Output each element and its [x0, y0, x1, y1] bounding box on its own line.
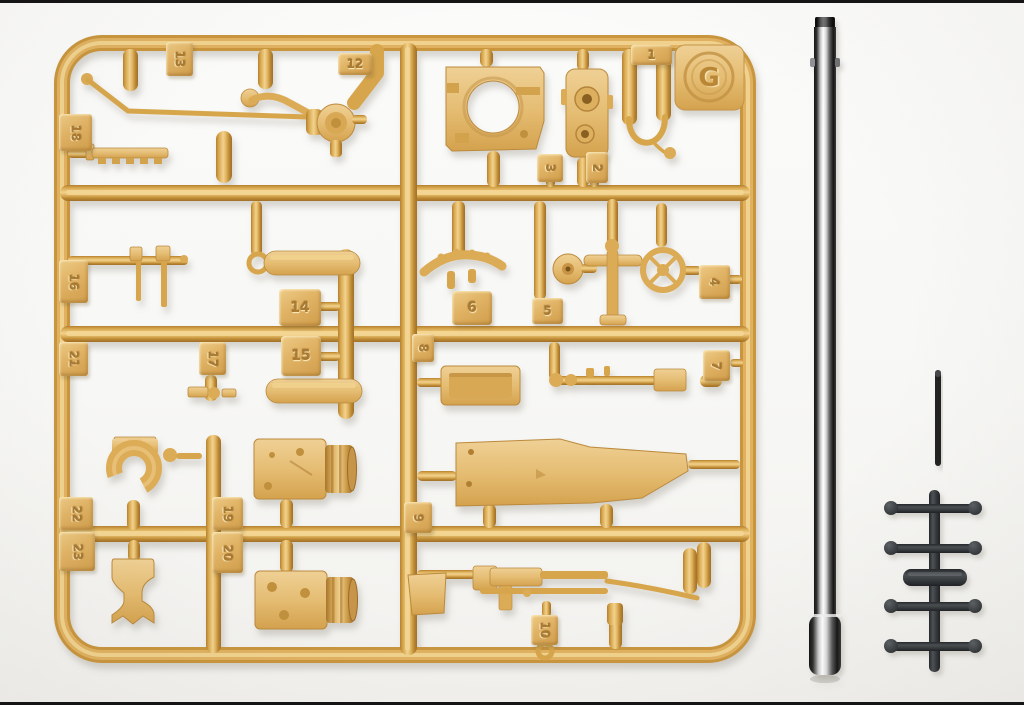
handwheel-part [643, 250, 683, 290]
part-tag-8: 8 [412, 334, 434, 362]
mg-mount-box-lower [255, 571, 358, 629]
part-tag-5: 5 [532, 298, 563, 324]
black-sprue [884, 490, 982, 672]
part-tag-10: 10 [531, 615, 558, 645]
u-clamp-part [112, 437, 158, 488]
part-tag-19: 19 [212, 497, 243, 530]
part-tag-13: 13 [166, 42, 193, 76]
cross-lever-part [584, 239, 642, 325]
pin-assembly-part [130, 246, 188, 307]
part-tag-23: 23 [59, 532, 95, 571]
part-tag-16: 16 [59, 260, 88, 303]
part-tag-4: 4 [699, 265, 730, 299]
part-tag-1: 1 [631, 45, 672, 65]
blower-part [241, 89, 367, 157]
small-fittings-part [188, 387, 236, 399]
part-tag-9: 9 [404, 502, 432, 533]
saddle-bracket-part [112, 559, 154, 624]
steel-rod [935, 370, 941, 466]
curved-rail-part [424, 249, 502, 290]
emblem-letter: G [698, 63, 719, 93]
tray-part [441, 366, 520, 405]
photo-drawing: G G [0, 3, 1024, 705]
part-tag-17: 17 [199, 342, 226, 375]
sprue-internal-runners [60, 43, 750, 655]
part-tag-12: 12 [338, 53, 372, 75]
axle-rod-part [549, 366, 686, 391]
part-tag-6: 6 [452, 291, 492, 325]
part-tag-15: 15 [281, 336, 321, 376]
part-tag-20: 20 [212, 532, 243, 573]
part-tag-2: 2 [586, 152, 608, 183]
turret-roof-part [446, 67, 544, 151]
part-tag-22: 22 [59, 497, 93, 530]
product-photo: G G [0, 0, 1024, 705]
part-tag-21: 21 [59, 342, 88, 376]
tan-sprue-g: G G [60, 43, 750, 658]
gun-shield-part [456, 439, 688, 506]
small-plate-part [408, 573, 446, 615]
recoil-cylinder-upper [249, 251, 360, 275]
wire-hook-part [629, 117, 676, 159]
part-tag-3: 3 [537, 154, 563, 182]
pin-part [216, 131, 232, 183]
diamond-pin-part [163, 448, 202, 462]
sprue-letter-emblem: G G [675, 45, 744, 110]
part-tag-14: 14 [279, 289, 321, 326]
toothed-strip-part [86, 144, 168, 164]
aluminum-barrel [809, 17, 841, 683]
mg-mount-box-upper [254, 439, 357, 499]
periscope-part [561, 69, 613, 157]
recoil-cylinder-lower [266, 379, 362, 403]
part-tag-18: 18 [59, 114, 92, 151]
smg-part [473, 566, 697, 625]
part-tag-7: 7 [703, 350, 730, 381]
